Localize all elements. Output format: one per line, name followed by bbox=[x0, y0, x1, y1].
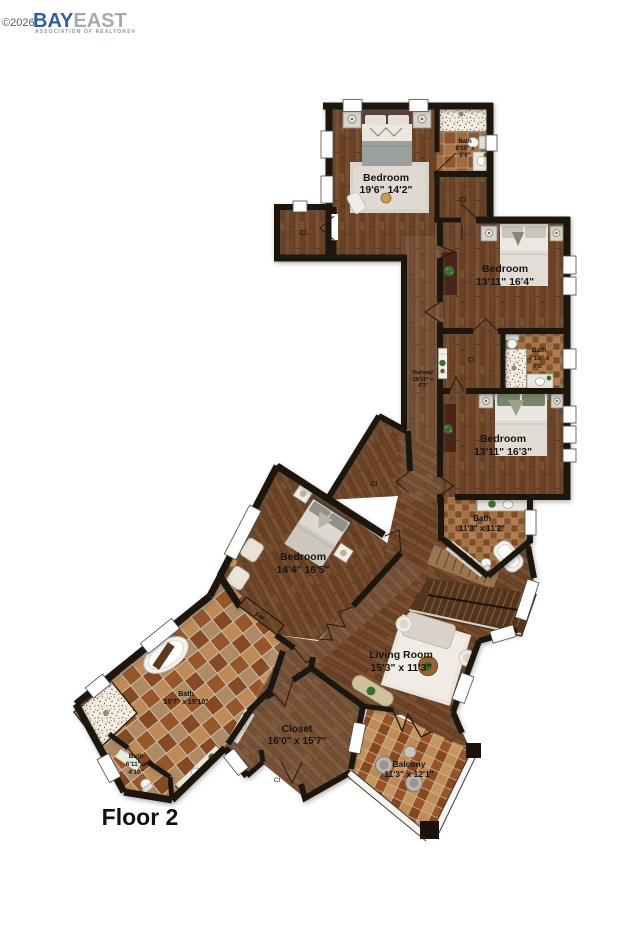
svg-text:Bath: Bath bbox=[178, 691, 194, 698]
svg-text:Bedroom: Bedroom bbox=[482, 263, 528, 275]
svg-text:Floor 2: Floor 2 bbox=[102, 804, 179, 830]
svg-text:Hallway: Hallway bbox=[413, 370, 434, 376]
svg-text:7'10" x: 7'10" x bbox=[529, 355, 550, 362]
svg-text:Cl: Cl bbox=[299, 228, 306, 237]
svg-text:Cl: Cl bbox=[370, 479, 377, 488]
svg-text:4'3": 4'3" bbox=[418, 383, 428, 389]
svg-text:13'11" 16'4": 13'11" 16'4" bbox=[476, 276, 534, 288]
svg-text:13'11" 16'3": 13'11" 16'3" bbox=[474, 446, 532, 458]
svg-text:15'3" x 11'3": 15'3" x 11'3" bbox=[370, 662, 431, 674]
svg-text:15'7" x 15'10": 15'7" x 15'10" bbox=[163, 699, 208, 706]
svg-text:11'3" x 12'1": 11'3" x 12'1" bbox=[384, 769, 433, 779]
svg-text:Bedroom: Bedroom bbox=[280, 551, 326, 563]
svg-text:16'0" x 15'7": 16'0" x 15'7" bbox=[268, 736, 327, 747]
svg-text:Cl: Cl bbox=[467, 355, 474, 364]
svg-text:Bath: Bath bbox=[458, 139, 472, 145]
svg-text:7'0": 7'0" bbox=[533, 363, 545, 370]
svg-text:Cl: Cl bbox=[274, 777, 281, 784]
svg-text:Bedroom: Bedroom bbox=[363, 172, 409, 184]
svg-text:6'11" x: 6'11" x bbox=[126, 761, 147, 768]
svg-text:Balcony: Balcony bbox=[392, 759, 425, 769]
svg-text:©2026: ©2026 bbox=[2, 17, 35, 29]
svg-text:Closet: Closet bbox=[282, 724, 313, 735]
svg-text:19'6" 14'2": 19'6" 14'2" bbox=[360, 184, 413, 196]
svg-text:Bath: Bath bbox=[532, 347, 546, 354]
svg-text:Cl: Cl bbox=[459, 195, 466, 204]
svg-text:5'9": 5'9" bbox=[460, 153, 471, 159]
svg-text:11'3" x 11'2": 11'3" x 11'2" bbox=[459, 524, 505, 533]
svg-text:Living Room: Living Room bbox=[369, 649, 433, 661]
svg-text:4'10": 4'10" bbox=[128, 769, 143, 776]
svg-text:8'10" x: 8'10" x bbox=[455, 146, 475, 152]
svg-text:Bath: Bath bbox=[129, 753, 143, 760]
svg-text:Bedroom: Bedroom bbox=[480, 433, 526, 445]
svg-text:Bath: Bath bbox=[473, 514, 491, 523]
svg-text:ASSOCIATION OF REALTORS®: ASSOCIATION OF REALTORS® bbox=[35, 28, 136, 35]
svg-text:14'4" 16'5": 14'4" 16'5" bbox=[277, 564, 330, 576]
